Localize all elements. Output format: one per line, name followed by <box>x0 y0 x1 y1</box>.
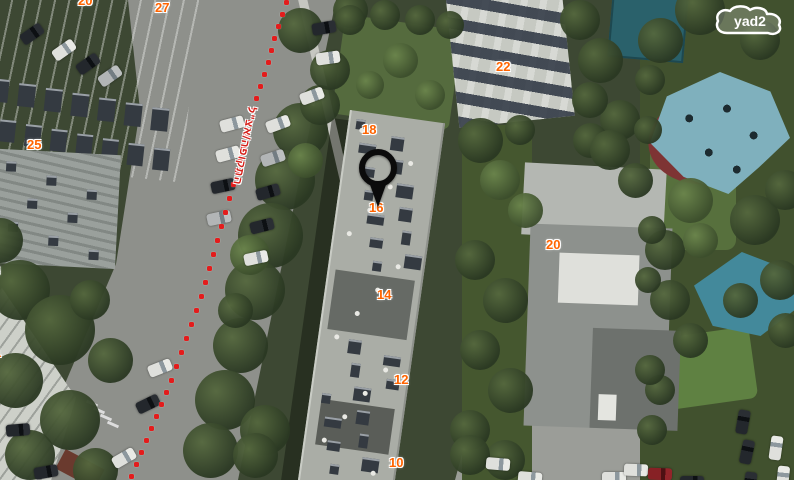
building-number-label: 20 <box>78 0 92 8</box>
boundary-dot <box>184 336 189 341</box>
rooftop-ac-unit <box>67 213 78 224</box>
boundary-dot <box>164 390 169 395</box>
parked-car <box>486 457 511 471</box>
tree <box>634 116 662 144</box>
tree <box>405 5 435 35</box>
building-number-label: 12 <box>394 372 408 387</box>
parked-car <box>680 476 704 480</box>
boundary-dot <box>280 12 285 17</box>
tree <box>233 433 278 478</box>
tree <box>88 338 133 383</box>
boundary-dot <box>211 252 216 257</box>
tree <box>638 216 666 244</box>
roof-white-section <box>558 253 640 306</box>
tree <box>183 423 238 478</box>
parked-car <box>624 464 648 477</box>
rooftop-ac-unit <box>404 254 423 270</box>
rooftop-ac-unit <box>0 78 10 103</box>
building-number-label: 27 <box>155 0 169 15</box>
tree <box>637 415 667 445</box>
rooftop-ac-unit <box>324 417 342 429</box>
rooftop-heater <box>383 367 389 373</box>
boundary-dot <box>203 280 208 285</box>
rooftop-ac-unit <box>372 261 382 272</box>
rooftop-heater <box>370 470 376 476</box>
tree <box>560 0 600 40</box>
tree <box>450 435 490 475</box>
boundary-dot <box>227 196 232 201</box>
parked-car <box>518 471 543 480</box>
tree <box>505 115 535 145</box>
rooftop-ac-unit <box>0 119 16 143</box>
rooftop-ac-unit <box>366 213 384 225</box>
tree <box>370 0 400 30</box>
tree <box>356 71 384 99</box>
boundary-dot <box>199 294 204 299</box>
boundary-dot <box>262 72 267 77</box>
rooftop-ac-unit <box>6 161 17 172</box>
boundary-dot <box>159 402 164 407</box>
parked-car <box>311 20 337 36</box>
roof-dark-patch <box>327 270 415 341</box>
rooftop-ac-unit <box>152 148 170 172</box>
aerial-map-canvas[interactable]: 2027253118161412102220 התקופה/אצ"ל yad2 <box>0 0 794 480</box>
parked-car <box>6 423 31 437</box>
rooftop-ac-unit <box>17 83 36 108</box>
rooftop-heater <box>334 334 340 340</box>
building-number-label: 1 <box>0 345 1 360</box>
rooftop-ac-unit <box>401 230 412 245</box>
building-number-label: 10 <box>389 455 403 470</box>
rooftop-ac-unit <box>44 88 63 113</box>
boundary-dot <box>129 474 134 479</box>
boundary-dot <box>139 450 144 455</box>
boundary-dot <box>215 238 220 243</box>
rooftop-ac-unit <box>124 102 143 127</box>
tree <box>436 11 464 39</box>
tree <box>572 82 608 118</box>
rooftop-ac-unit <box>383 355 401 367</box>
building-number-label: 20 <box>546 237 560 252</box>
boundary-dot <box>266 60 271 65</box>
tree <box>483 278 528 323</box>
rooftop-ac-unit <box>46 175 57 186</box>
rooftop-ac-unit <box>369 237 383 249</box>
parked-car <box>648 468 672 480</box>
rooftop-ac-unit <box>347 339 362 355</box>
rooftop-ac-unit <box>126 143 144 167</box>
tree <box>635 355 665 385</box>
tree <box>618 163 653 198</box>
rooftop-ac-unit <box>97 98 116 123</box>
tree <box>673 323 708 358</box>
roof-white-hatch <box>598 394 617 421</box>
rooftop-ac-unit <box>49 129 67 153</box>
rooftop-ac-unit <box>27 198 38 209</box>
tree <box>760 260 794 300</box>
tree <box>288 143 323 178</box>
parked-car <box>742 471 757 480</box>
boundary-dot <box>194 308 199 313</box>
boundary-dot <box>154 414 159 419</box>
tree <box>455 240 495 280</box>
rooftop-heater <box>395 264 401 270</box>
tree <box>635 65 665 95</box>
tree <box>638 18 683 63</box>
rooftop-ac-unit <box>361 457 380 473</box>
rooftop-ac-unit <box>355 409 370 425</box>
rooftop-ac-unit <box>70 93 89 118</box>
boundary-dot <box>144 438 149 443</box>
tree <box>218 293 253 328</box>
boundary-dot <box>219 224 224 229</box>
boundary-dot <box>272 36 277 41</box>
tree <box>488 368 533 413</box>
location-pin-icon[interactable] <box>347 134 409 210</box>
boundary-dot <box>169 378 174 383</box>
tree <box>578 38 623 83</box>
tree <box>460 330 500 370</box>
rooftop-ac-unit <box>87 190 98 201</box>
building-number-label: 25 <box>27 137 41 152</box>
parked-car <box>776 465 790 480</box>
rooftop-ac-unit <box>329 464 339 475</box>
tree <box>635 267 661 293</box>
tree <box>70 280 110 320</box>
yad2-logo[interactable]: yad2 <box>712 5 788 39</box>
boundary-dot <box>189 322 194 327</box>
building-number-label: 14 <box>377 287 391 302</box>
rooftop-ac-unit <box>48 236 59 247</box>
boundary-dot <box>276 24 281 29</box>
parked-car <box>602 472 626 480</box>
rooftop-ac-unit <box>350 362 361 377</box>
rooftop-ac-unit <box>150 107 169 132</box>
boundary-dot <box>174 364 179 369</box>
tree <box>668 178 713 223</box>
tree <box>383 43 418 78</box>
boundary-dot <box>207 266 212 271</box>
rooftop-ac-unit <box>358 433 369 448</box>
yad2-logo-text: yad2 <box>734 13 766 29</box>
boundary-dot <box>254 96 259 101</box>
tree <box>335 5 365 35</box>
building-number-label: 22 <box>496 59 510 74</box>
boundary-dot <box>284 0 289 5</box>
rooftop-ac-unit <box>88 250 99 261</box>
tree <box>590 130 630 170</box>
tree <box>458 118 503 163</box>
boundary-dot <box>179 350 184 355</box>
rooftop-ac-unit <box>326 440 340 452</box>
rooftop-heater <box>346 231 352 237</box>
tree <box>508 193 543 228</box>
boundary-dot <box>223 210 228 215</box>
tree <box>683 223 718 258</box>
tree <box>415 80 445 110</box>
boundary-dot <box>134 462 139 467</box>
tree <box>723 283 758 318</box>
boundary-dot <box>258 84 263 89</box>
boundary-dot <box>269 48 274 53</box>
rooftop-ac-unit <box>321 393 331 404</box>
boundary-dot <box>149 426 154 431</box>
tree <box>480 160 520 200</box>
